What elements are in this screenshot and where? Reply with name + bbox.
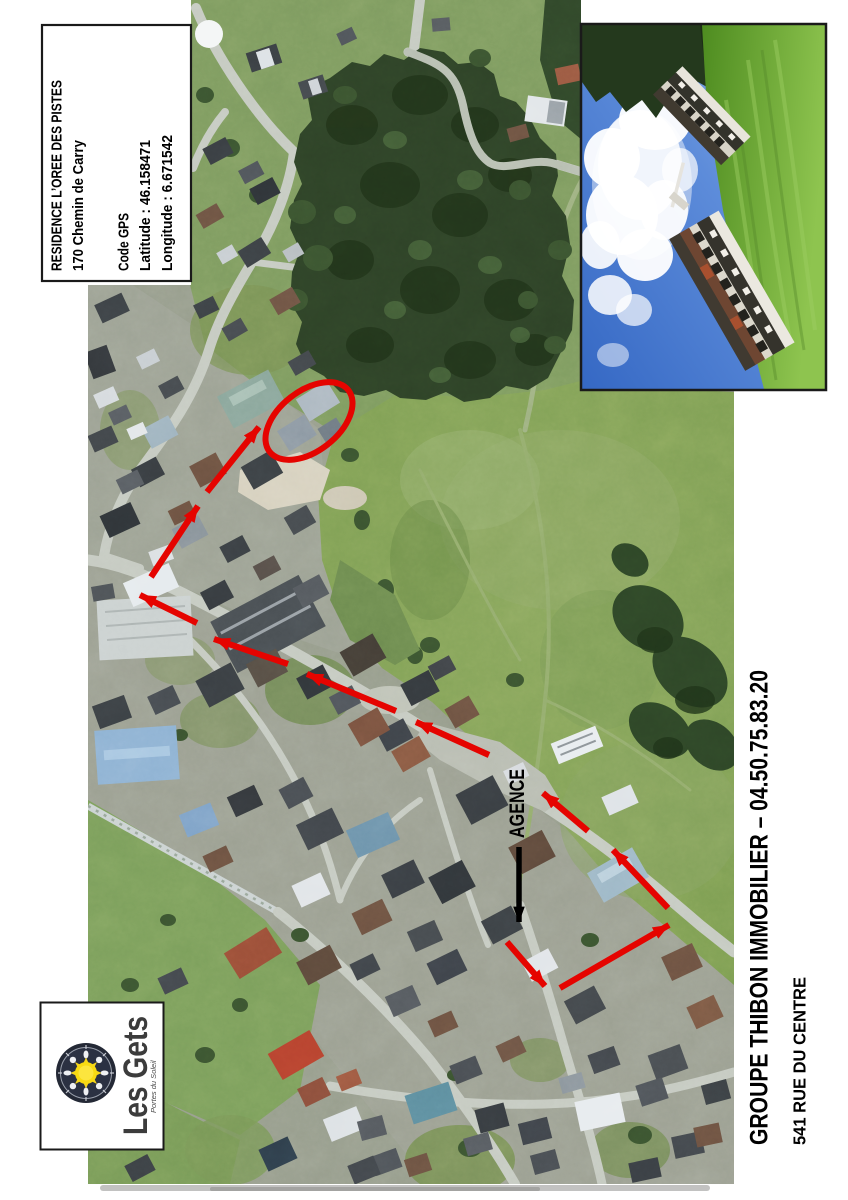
- svg-text:GROUPE THIBON IMMOBILIER – 04.: GROUPE THIBON IMMOBILIER – 04.50.75.83.2…: [746, 670, 774, 1145]
- svg-text:Longitude : 6.671542: Longitude : 6.671542: [159, 135, 176, 271]
- svg-text:Code GPS: Code GPS: [116, 213, 133, 271]
- svg-text:Latitude : 46.158471: Latitude : 46.158471: [137, 140, 154, 271]
- svg-text:Portes du Soleil: Portes du Soleil: [149, 1060, 158, 1113]
- svg-text:AGENCE: AGENCE: [506, 769, 529, 838]
- svg-text:RESIDENCE L’OREE DES PISTES: RESIDENCE L’OREE DES PISTES: [49, 80, 66, 271]
- svg-text:170 Chemin de Carry: 170 Chemin de Carry: [70, 139, 87, 271]
- svg-text:541 RUE DU CENTRE: 541 RUE DU CENTRE: [790, 977, 810, 1145]
